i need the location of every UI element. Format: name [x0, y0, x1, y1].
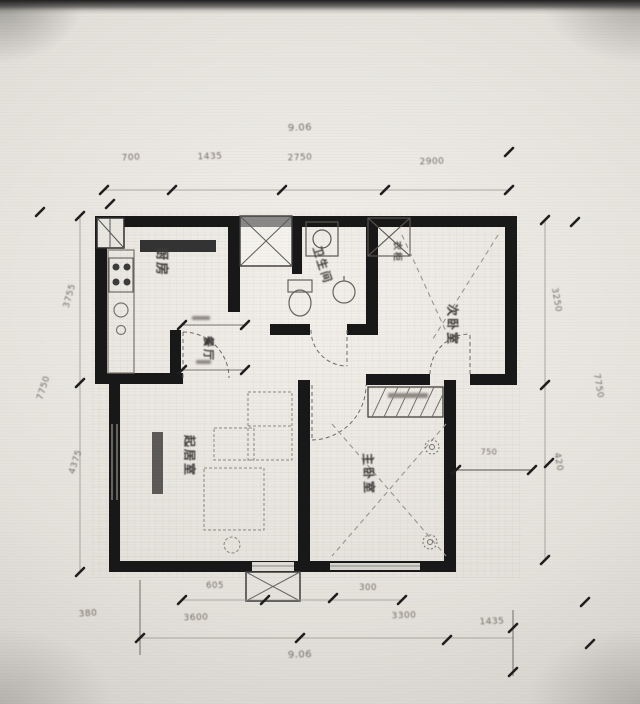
- wall: [292, 216, 302, 274]
- wall: [366, 374, 430, 385]
- toilet-icon: [288, 280, 312, 316]
- entry-door-icon: [240, 216, 292, 266]
- dimension-top-1: 700: [121, 153, 140, 164]
- dining-table-icon: [248, 392, 292, 460]
- master-window-icon: [330, 563, 420, 570]
- floorplan-photo: 厨房 餐厅 卫生间 次卧室 衣柜 起居室 主卧室 9.06 700 1435 2…: [0, 0, 640, 704]
- wall: [444, 380, 456, 572]
- dimension-lines: [80, 190, 545, 676]
- dimension-master-window: 750: [481, 448, 498, 457]
- kitchen-window-icon: [97, 218, 124, 248]
- wall: [170, 330, 181, 384]
- dimension-top-total: 9.06: [288, 122, 313, 134]
- wall: [270, 324, 310, 335]
- dimension-bottom-2: 3600: [183, 613, 208, 624]
- dimension-bottom-inner-2: 300: [359, 583, 377, 593]
- living-room-label: 起居室: [182, 435, 199, 477]
- dimension-top-3: 2750: [287, 153, 312, 164]
- bay-window-icon: [246, 562, 300, 601]
- plant-icon: [423, 440, 439, 549]
- photo-top-edge: [0, 0, 640, 14]
- micro-text-mark: [192, 316, 210, 320]
- sofa-icon: [204, 428, 264, 553]
- dimension-top-4: 2900: [419, 157, 444, 168]
- dimension-top-2: 1435: [197, 152, 222, 163]
- dimension-bottom-1: 380: [78, 608, 97, 619]
- micro-text-mark: [196, 360, 211, 364]
- dining-label: 餐厅: [201, 336, 217, 362]
- dimension-bottom-3: 3300: [391, 611, 416, 622]
- bedroom2-label: 次卧室: [445, 304, 462, 346]
- dimension-bottom-inner-1: 605: [206, 581, 224, 591]
- wall: [505, 216, 517, 385]
- micro-text-mark: [388, 393, 428, 398]
- bathroom-door-swing-icon: [311, 330, 347, 366]
- master-wardrobe-icon: [368, 387, 443, 417]
- dimension-bottom-4: 1435: [479, 617, 504, 628]
- wall: [298, 380, 310, 572]
- floorplan-drawing: [0, 0, 640, 704]
- wall: [347, 324, 378, 335]
- tv-cabinet-icon: [152, 432, 163, 494]
- wall: [109, 384, 120, 572]
- master-bedroom-label: 主卧室: [360, 453, 378, 496]
- kitchen-sink-icon: [114, 303, 128, 335]
- wall: [95, 373, 183, 384]
- dimension-bottom-total: 9.06: [288, 649, 313, 661]
- wardrobe-label: 衣柜: [392, 241, 405, 263]
- wall: [228, 216, 240, 312]
- kitchen-label: 厨房: [154, 247, 173, 277]
